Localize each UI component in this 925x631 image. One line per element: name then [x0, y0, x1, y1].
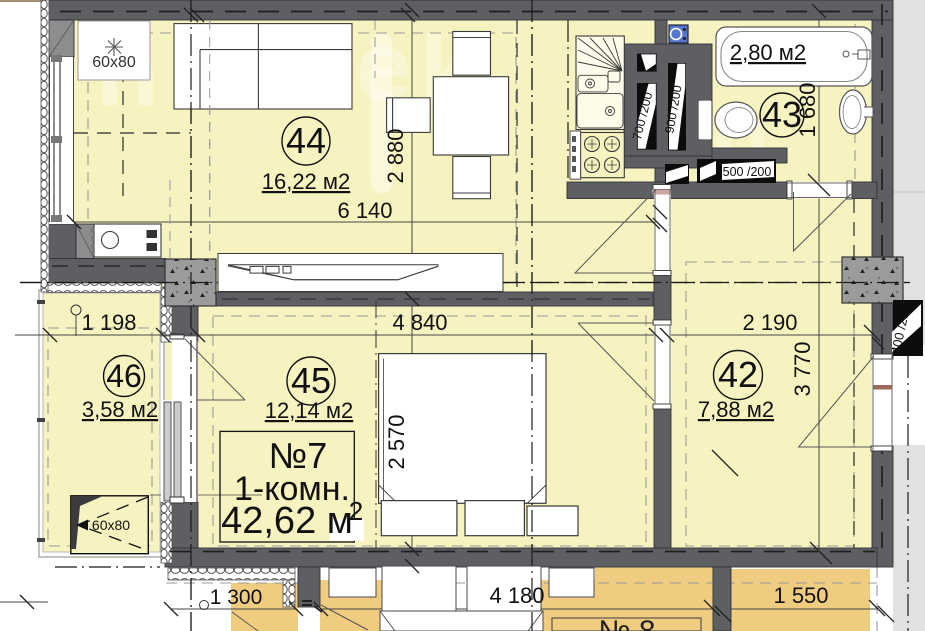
svg-text:46: 46 — [106, 358, 142, 394]
svg-text:1 680: 1 680 — [795, 82, 820, 137]
svg-text:60х80: 60х80 — [92, 517, 130, 533]
svg-text:2,80 м2: 2,80 м2 — [730, 40, 806, 65]
svg-text:3,58 м2: 3,58 м2 — [82, 397, 158, 422]
svg-text:4 180: 4 180 — [489, 583, 544, 608]
svg-text:4 840: 4 840 — [392, 310, 447, 335]
svg-text:16,22 м2: 16,22 м2 — [262, 169, 351, 194]
svg-text:1 198: 1 198 — [81, 310, 136, 335]
svg-text:№ 8: № 8 — [598, 615, 655, 631]
svg-text:1 300: 1 300 — [210, 586, 263, 609]
svg-text:2 190: 2 190 — [742, 310, 797, 335]
svg-text:6 140: 6 140 — [337, 198, 392, 223]
svg-text:1 550: 1 550 — [773, 583, 828, 608]
svg-text:45: 45 — [291, 360, 331, 401]
svg-text:42,62 м: 42,62 м — [221, 500, 353, 542]
svg-text:2: 2 — [349, 496, 363, 526]
svg-text:7,88 м2: 7,88 м2 — [698, 397, 774, 422]
svg-text:44: 44 — [286, 120, 326, 161]
svg-text:60х80: 60х80 — [92, 54, 136, 71]
svg-text:2 570: 2 570 — [384, 414, 409, 469]
svg-text:42: 42 — [718, 354, 758, 395]
svg-text:500 /200: 500 /200 — [723, 165, 772, 179]
svg-text:2 880: 2 880 — [383, 128, 408, 183]
svg-text:12,14 м2: 12,14 м2 — [265, 398, 354, 423]
svg-text:3 770: 3 770 — [790, 341, 815, 396]
